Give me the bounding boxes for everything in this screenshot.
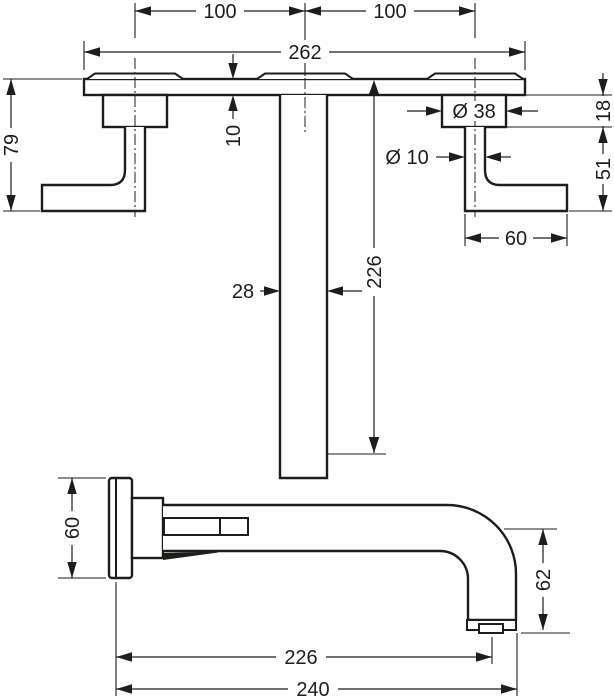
dim-label-stem-diameter: Ø 10 bbox=[385, 147, 428, 169]
left-lever-handle bbox=[42, 127, 145, 211]
dim-label-escutcheon-diameter: Ø 38 bbox=[452, 101, 495, 123]
side-view-fixture bbox=[109, 478, 516, 633]
dim-label-handle-drop: 51 bbox=[593, 158, 614, 180]
dim-label-escutcheon-depth: 18 bbox=[593, 100, 614, 122]
dim-label-plate-thickness: 10 bbox=[223, 125, 245, 147]
right-lever-handle bbox=[465, 127, 567, 211]
side-view: 60 62 226 240 bbox=[58, 478, 570, 700]
spout-plan-outline bbox=[280, 95, 327, 478]
dim-label-spout-length: 226 bbox=[364, 255, 386, 288]
dim-label-flange-height: 60 bbox=[62, 517, 84, 539]
dim-label-handle-projection: 79 bbox=[1, 134, 23, 156]
spout-underside-shadow bbox=[163, 552, 218, 561]
dim-label-reach-to-aerator: 226 bbox=[284, 647, 317, 669]
dim-label-handle-width: 60 bbox=[505, 228, 527, 250]
dim-label-plate-width: 262 bbox=[288, 42, 321, 64]
dim-label-handle-spacing-left: 100 bbox=[203, 1, 236, 23]
technical-drawing-page: 100 100 262 79 10 226 28 Ø 38 Ø 10 18 51 bbox=[0, 0, 614, 700]
top-view-fixture bbox=[42, 74, 567, 479]
aerator-nozzle bbox=[479, 624, 503, 633]
top-view: 100 100 262 79 10 226 28 Ø 38 Ø 10 18 51 bbox=[1, 1, 614, 478]
wall-flange bbox=[109, 478, 132, 578]
dim-label-outlet-drop: 62 bbox=[533, 569, 555, 591]
technical-drawing-canvas: 100 100 262 79 10 226 28 Ø 38 Ø 10 18 51 bbox=[0, 0, 614, 700]
escutcheon-cone bbox=[132, 498, 163, 558]
dim-label-total-reach: 240 bbox=[296, 679, 329, 700]
valve-stem-detail bbox=[164, 518, 248, 535]
dim-label-handle-spacing-right: 100 bbox=[373, 1, 406, 23]
dim-label-spout-width: 28 bbox=[232, 281, 254, 303]
